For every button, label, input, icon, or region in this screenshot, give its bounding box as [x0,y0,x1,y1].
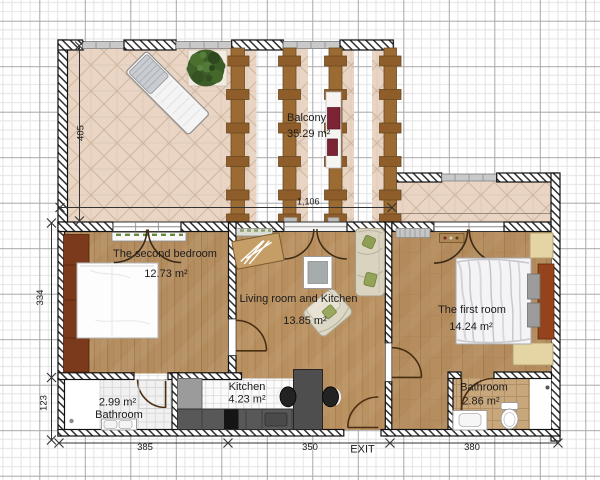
svg-text:Bathroom: Bathroom [460,382,508,394]
svg-text:The first room: The first room [438,304,506,316]
svg-text:2.86 m²: 2.86 m² [462,396,500,408]
svg-text:EXIT: EXIT [350,444,375,456]
svg-text:4.23 m²: 4.23 m² [228,394,266,406]
svg-text:14.24 m²: 14.24 m² [449,321,493,333]
svg-text:Bathroom: Bathroom [95,409,143,421]
svg-text:123: 123 [39,395,50,411]
svg-text:Kitchen: Kitchen [229,381,266,393]
svg-text:2.99 m²: 2.99 m² [99,397,137,409]
svg-text:334: 334 [35,290,46,306]
svg-text:12.73 m²: 12.73 m² [144,268,188,280]
svg-text:The second bedroom: The second bedroom [113,248,217,260]
svg-text:405: 405 [76,125,87,141]
svg-text:Balcony: Balcony [287,112,327,124]
svg-text:380: 380 [464,442,480,453]
svg-text:13.85 m²: 13.85 m² [283,315,327,327]
svg-text:350: 350 [302,442,318,453]
svg-text:385: 385 [137,442,153,453]
svg-text:Living room and Kitchen: Living room and Kitchen [239,293,357,305]
svg-text:1,106: 1,106 [297,197,320,207]
svg-text:35.29 m²: 35.29 m² [287,128,331,140]
